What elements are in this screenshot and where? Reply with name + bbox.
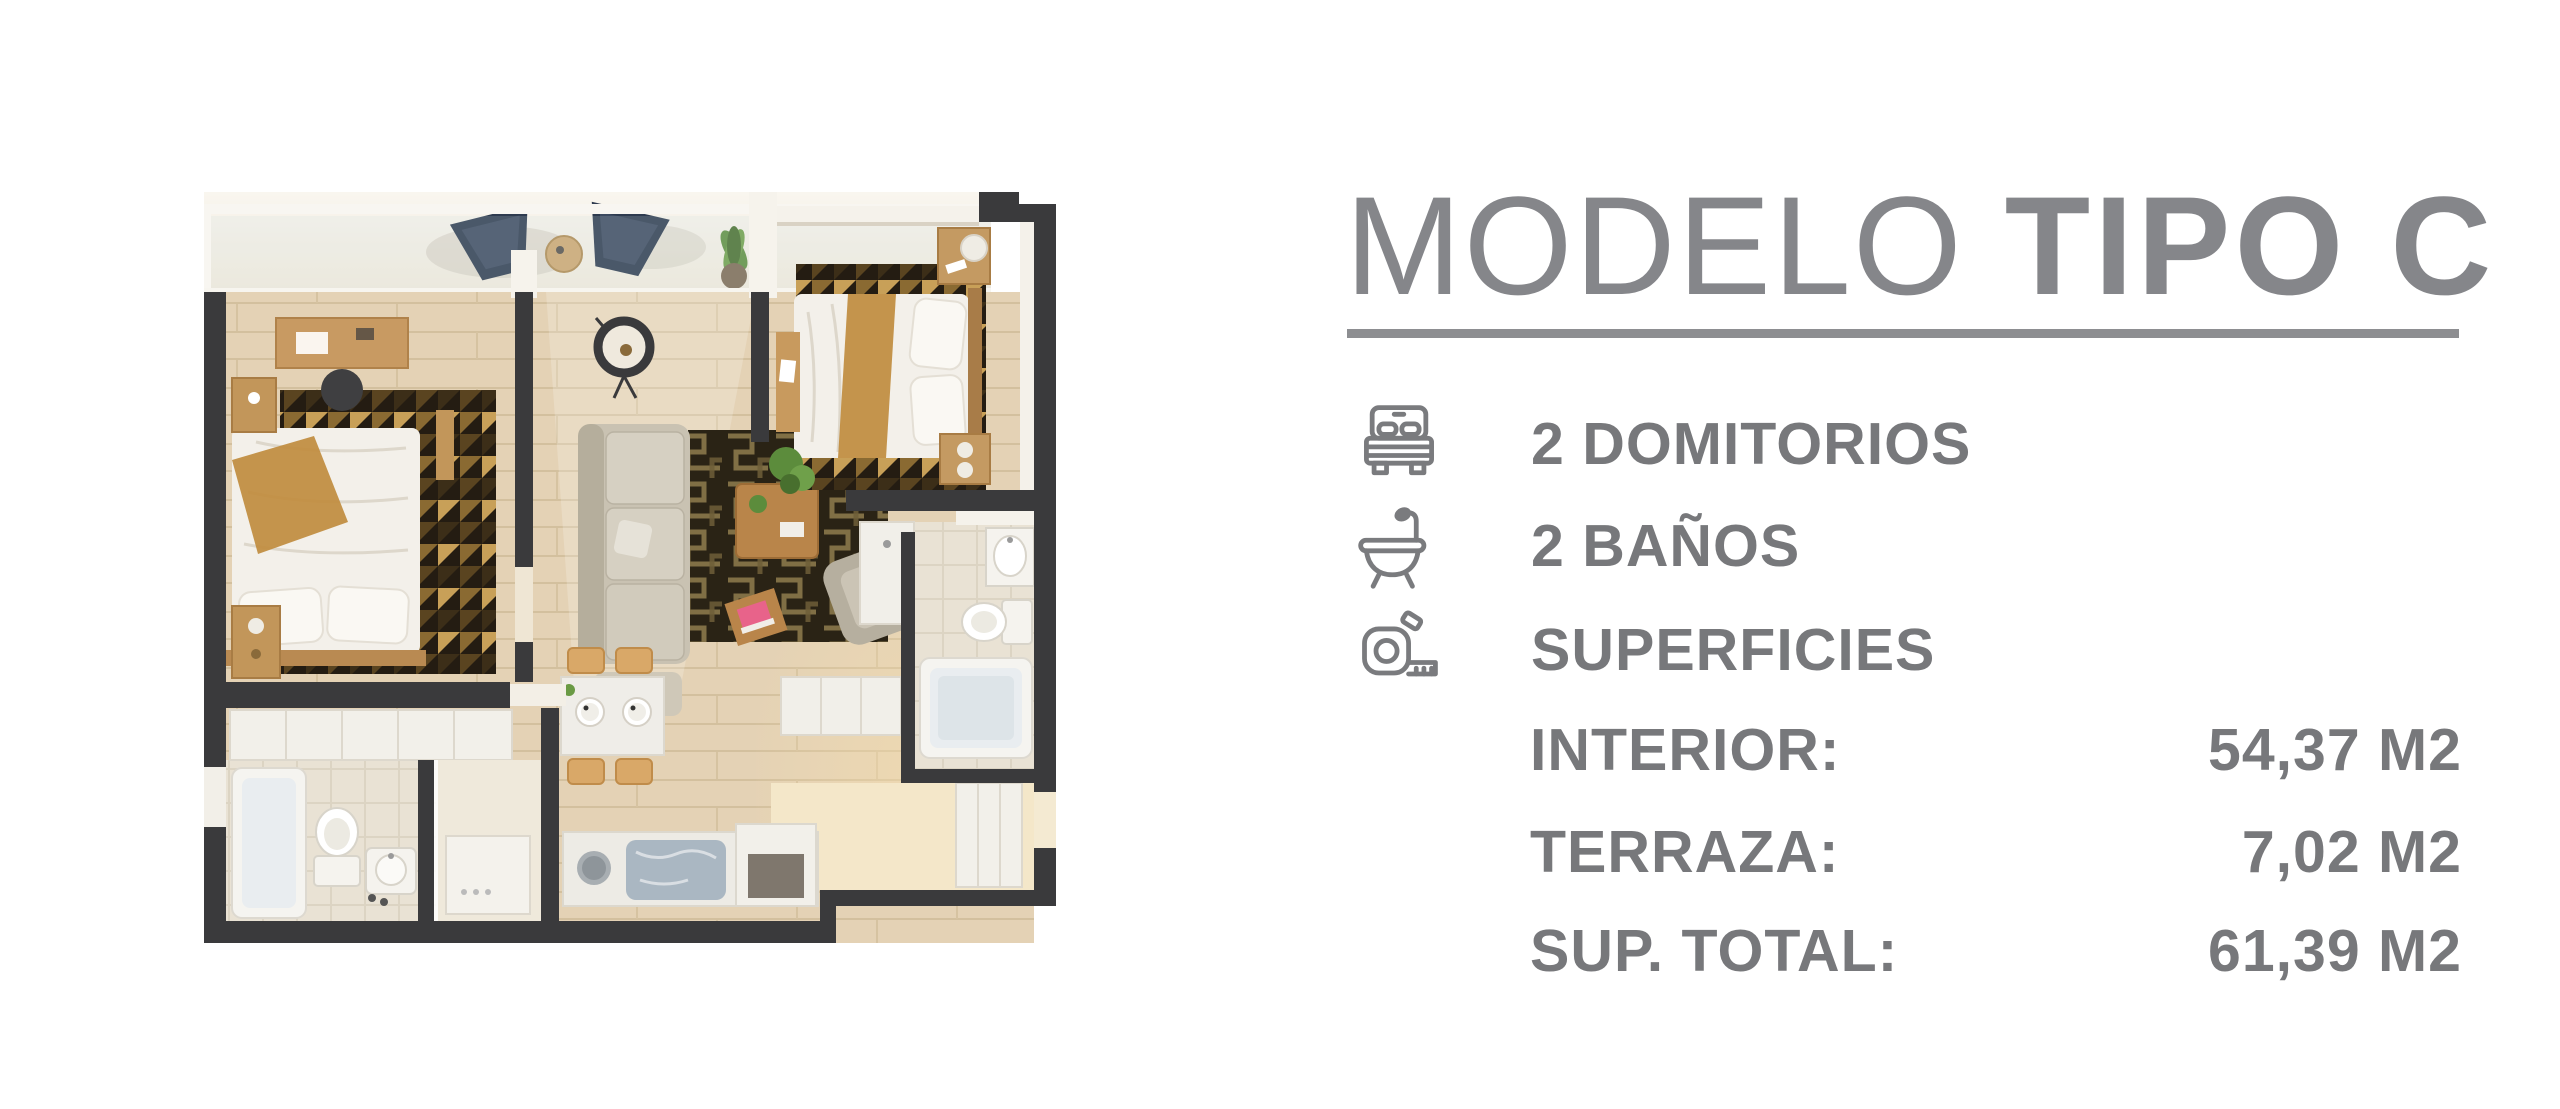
surface-label: SUP. TOTAL: xyxy=(1530,917,1898,985)
pillar xyxy=(511,250,537,298)
closet xyxy=(230,710,512,760)
white-wall xyxy=(774,206,979,222)
stove xyxy=(626,840,726,900)
feature-label: SUPERFICIES xyxy=(1531,616,1935,684)
surface-value: 54,37 M2 xyxy=(2208,716,2462,784)
door-threshold xyxy=(510,684,566,706)
surface-row-interior: INTERIOR: 54,37 M2 xyxy=(1530,716,2462,784)
surface-row-total: SUP. TOTAL: 61,39 M2 xyxy=(1530,917,2462,985)
throw-blanket xyxy=(838,294,896,458)
stool xyxy=(616,648,652,673)
table-plant xyxy=(749,495,767,513)
shower-tray xyxy=(446,836,530,914)
dresser xyxy=(938,228,990,284)
stool xyxy=(616,759,652,784)
feature-row-bathrooms: 2 BAÑOS xyxy=(1353,498,1800,594)
entry-door-gap xyxy=(1034,792,1056,848)
wall-shadow xyxy=(774,222,979,226)
measuring-tape-icon xyxy=(1353,604,1445,696)
pillow xyxy=(909,297,968,370)
feature-row-surfaces: SUPERFICIES xyxy=(1353,602,1935,698)
bathroom-1 xyxy=(226,710,541,921)
info-panel: MODELO TIPO C 2 DOMITORIOS xyxy=(1345,0,2463,1109)
nightstand xyxy=(940,434,990,484)
surface-value: 61,39 M2 xyxy=(2208,917,2462,985)
surface-label: TERRAZA: xyxy=(1530,818,1840,886)
desk xyxy=(776,332,800,432)
bathtub-icon xyxy=(1353,500,1445,592)
brochure-page: MODELO TIPO C 2 DOMITORIOS xyxy=(0,0,2560,1109)
surface-label: INTERIOR: xyxy=(1530,716,1841,784)
coffee-table xyxy=(736,484,818,558)
bathtub xyxy=(232,768,306,918)
nightstand xyxy=(232,606,280,678)
bed-icon xyxy=(1353,398,1445,490)
toilet xyxy=(962,600,1032,644)
feature-label: 2 BAÑOS xyxy=(1531,512,1800,580)
pillow xyxy=(327,586,410,644)
door-gap xyxy=(515,567,533,642)
window-gap xyxy=(204,767,226,827)
bathroom-2 xyxy=(915,522,1034,769)
stool xyxy=(568,759,604,784)
toilet xyxy=(314,808,360,886)
stool xyxy=(568,648,604,673)
white-wall xyxy=(956,511,1034,525)
bathtub xyxy=(920,658,1032,758)
surface-value: 7,02 M2 xyxy=(2242,818,2462,886)
surface-row-terraza: TERRAZA: 7,02 M2 xyxy=(1530,818,2462,886)
title-underline xyxy=(1347,329,2459,338)
hall-closet xyxy=(781,677,901,735)
wardrobe xyxy=(956,783,1022,887)
side-table xyxy=(232,378,276,432)
kitchen-counter xyxy=(563,824,818,906)
sofa-pillow xyxy=(613,519,653,559)
kitchen-island xyxy=(561,677,664,755)
feature-row-bedrooms: 2 DOMITORIOS xyxy=(1353,396,1971,492)
title-light: MODELO xyxy=(1345,167,1964,324)
feature-label: 2 DOMITORIOS xyxy=(1531,410,1971,478)
page-title: MODELO TIPO C xyxy=(1345,176,2495,316)
shower xyxy=(434,760,541,921)
sink xyxy=(986,528,1034,586)
floorplan-rendering xyxy=(196,192,1076,954)
console xyxy=(436,410,454,480)
desk-chair xyxy=(321,369,363,411)
title-bold: TIPO C xyxy=(2005,167,2496,324)
pillar xyxy=(749,192,777,298)
